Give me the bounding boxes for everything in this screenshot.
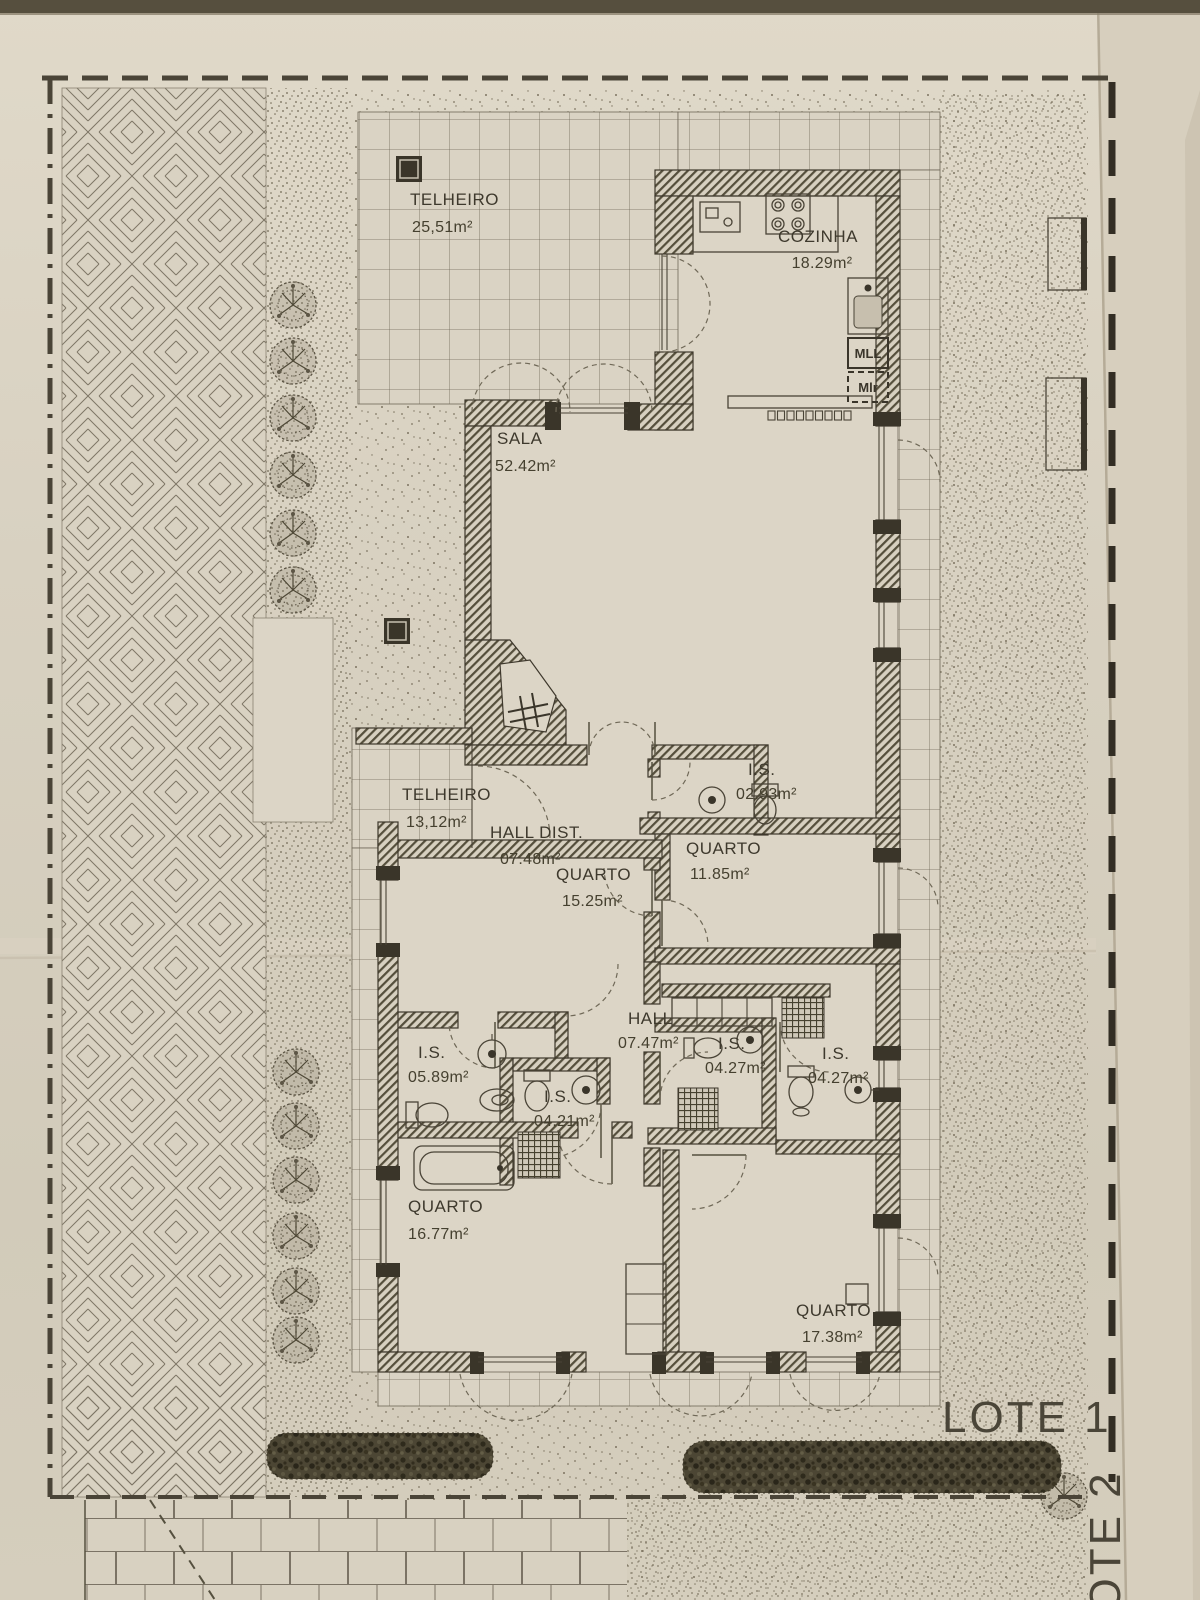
room-label-sala-name: SALA xyxy=(497,429,543,448)
street-paving xyxy=(85,1500,627,1600)
appliance-label-mlr: Mlr xyxy=(858,380,878,395)
room-label-cozinha-area: 18.29m² xyxy=(792,255,853,272)
room-label-cozinha-name: COZINHA xyxy=(778,227,858,246)
room-label-hall-name: HALL xyxy=(628,1009,673,1028)
room-label-quarto1677-name: QUARTO xyxy=(408,1197,483,1216)
room-label-is427l-area: 04.27m² xyxy=(705,1060,766,1077)
room-label-is427l-name: I.S. xyxy=(718,1034,746,1053)
room-label-is421-name: I.S. xyxy=(544,1087,572,1106)
room-label-sala-area: 52.42m² xyxy=(495,458,556,475)
room-label-telheiro-25-area: 25,51m² xyxy=(412,219,473,236)
site-plan-drawing: TELHEIRO 25,51m² COZINHA 18.29m² MLL Mlr… xyxy=(0,0,1200,1600)
room-label-is589-area: 05.89m² xyxy=(408,1069,469,1086)
shower-tray xyxy=(782,998,824,1038)
room-label-telheiro-13-name: TELHEIRO xyxy=(402,785,491,804)
room-label-hall-dist-name: HALL DIST. xyxy=(490,823,583,842)
room-label-quarto1738-area: 17.38m² xyxy=(802,1329,863,1346)
appliance-label-mll: MLL xyxy=(855,346,882,361)
room-label-hall-dist-area: 07.48m² xyxy=(500,851,561,868)
shower-tray xyxy=(518,1132,560,1178)
room-label-is293-area: 02.93m² xyxy=(736,786,797,803)
room-label-is427r-name: I.S. xyxy=(822,1044,850,1063)
room-label-hall-area: 07.47m² xyxy=(618,1035,679,1052)
room-label-telheiro-25-name: TELHEIRO xyxy=(410,190,499,209)
shower-tray xyxy=(678,1088,718,1130)
lot-label-lote2: LOTE 2 xyxy=(1081,1470,1130,1600)
room-label-quarto1525-area: 15.25m² xyxy=(562,893,623,910)
room-label-quarto1185-name: QUARTO xyxy=(686,839,761,858)
lot-label-lote1: LOTE 1 xyxy=(942,1393,1112,1442)
room-label-quarto1677-area: 16.77m² xyxy=(408,1226,469,1243)
room-label-quarto1738-name: QUARTO xyxy=(796,1301,871,1320)
room-label-is293-name: I.S. xyxy=(748,760,776,779)
room-label-quarto1185-area: 11.85m² xyxy=(690,866,750,883)
garden-landing xyxy=(253,618,333,822)
room-label-is589-name: I.S. xyxy=(418,1043,446,1062)
room-label-is427r-area: 04.27m² xyxy=(808,1070,869,1087)
room-label-is421-area: 04.21m² xyxy=(534,1113,595,1130)
room-label-quarto1525-name: QUARTO xyxy=(556,865,631,884)
floor-plan-photo: TELHEIRO 25,51m² COZINHA 18.29m² MLL Mlr… xyxy=(0,0,1200,1600)
room-label-telheiro-13-area: 13,12m² xyxy=(406,814,467,831)
paper-top-edge xyxy=(0,0,1200,13)
paving-basketweave xyxy=(62,88,266,1497)
